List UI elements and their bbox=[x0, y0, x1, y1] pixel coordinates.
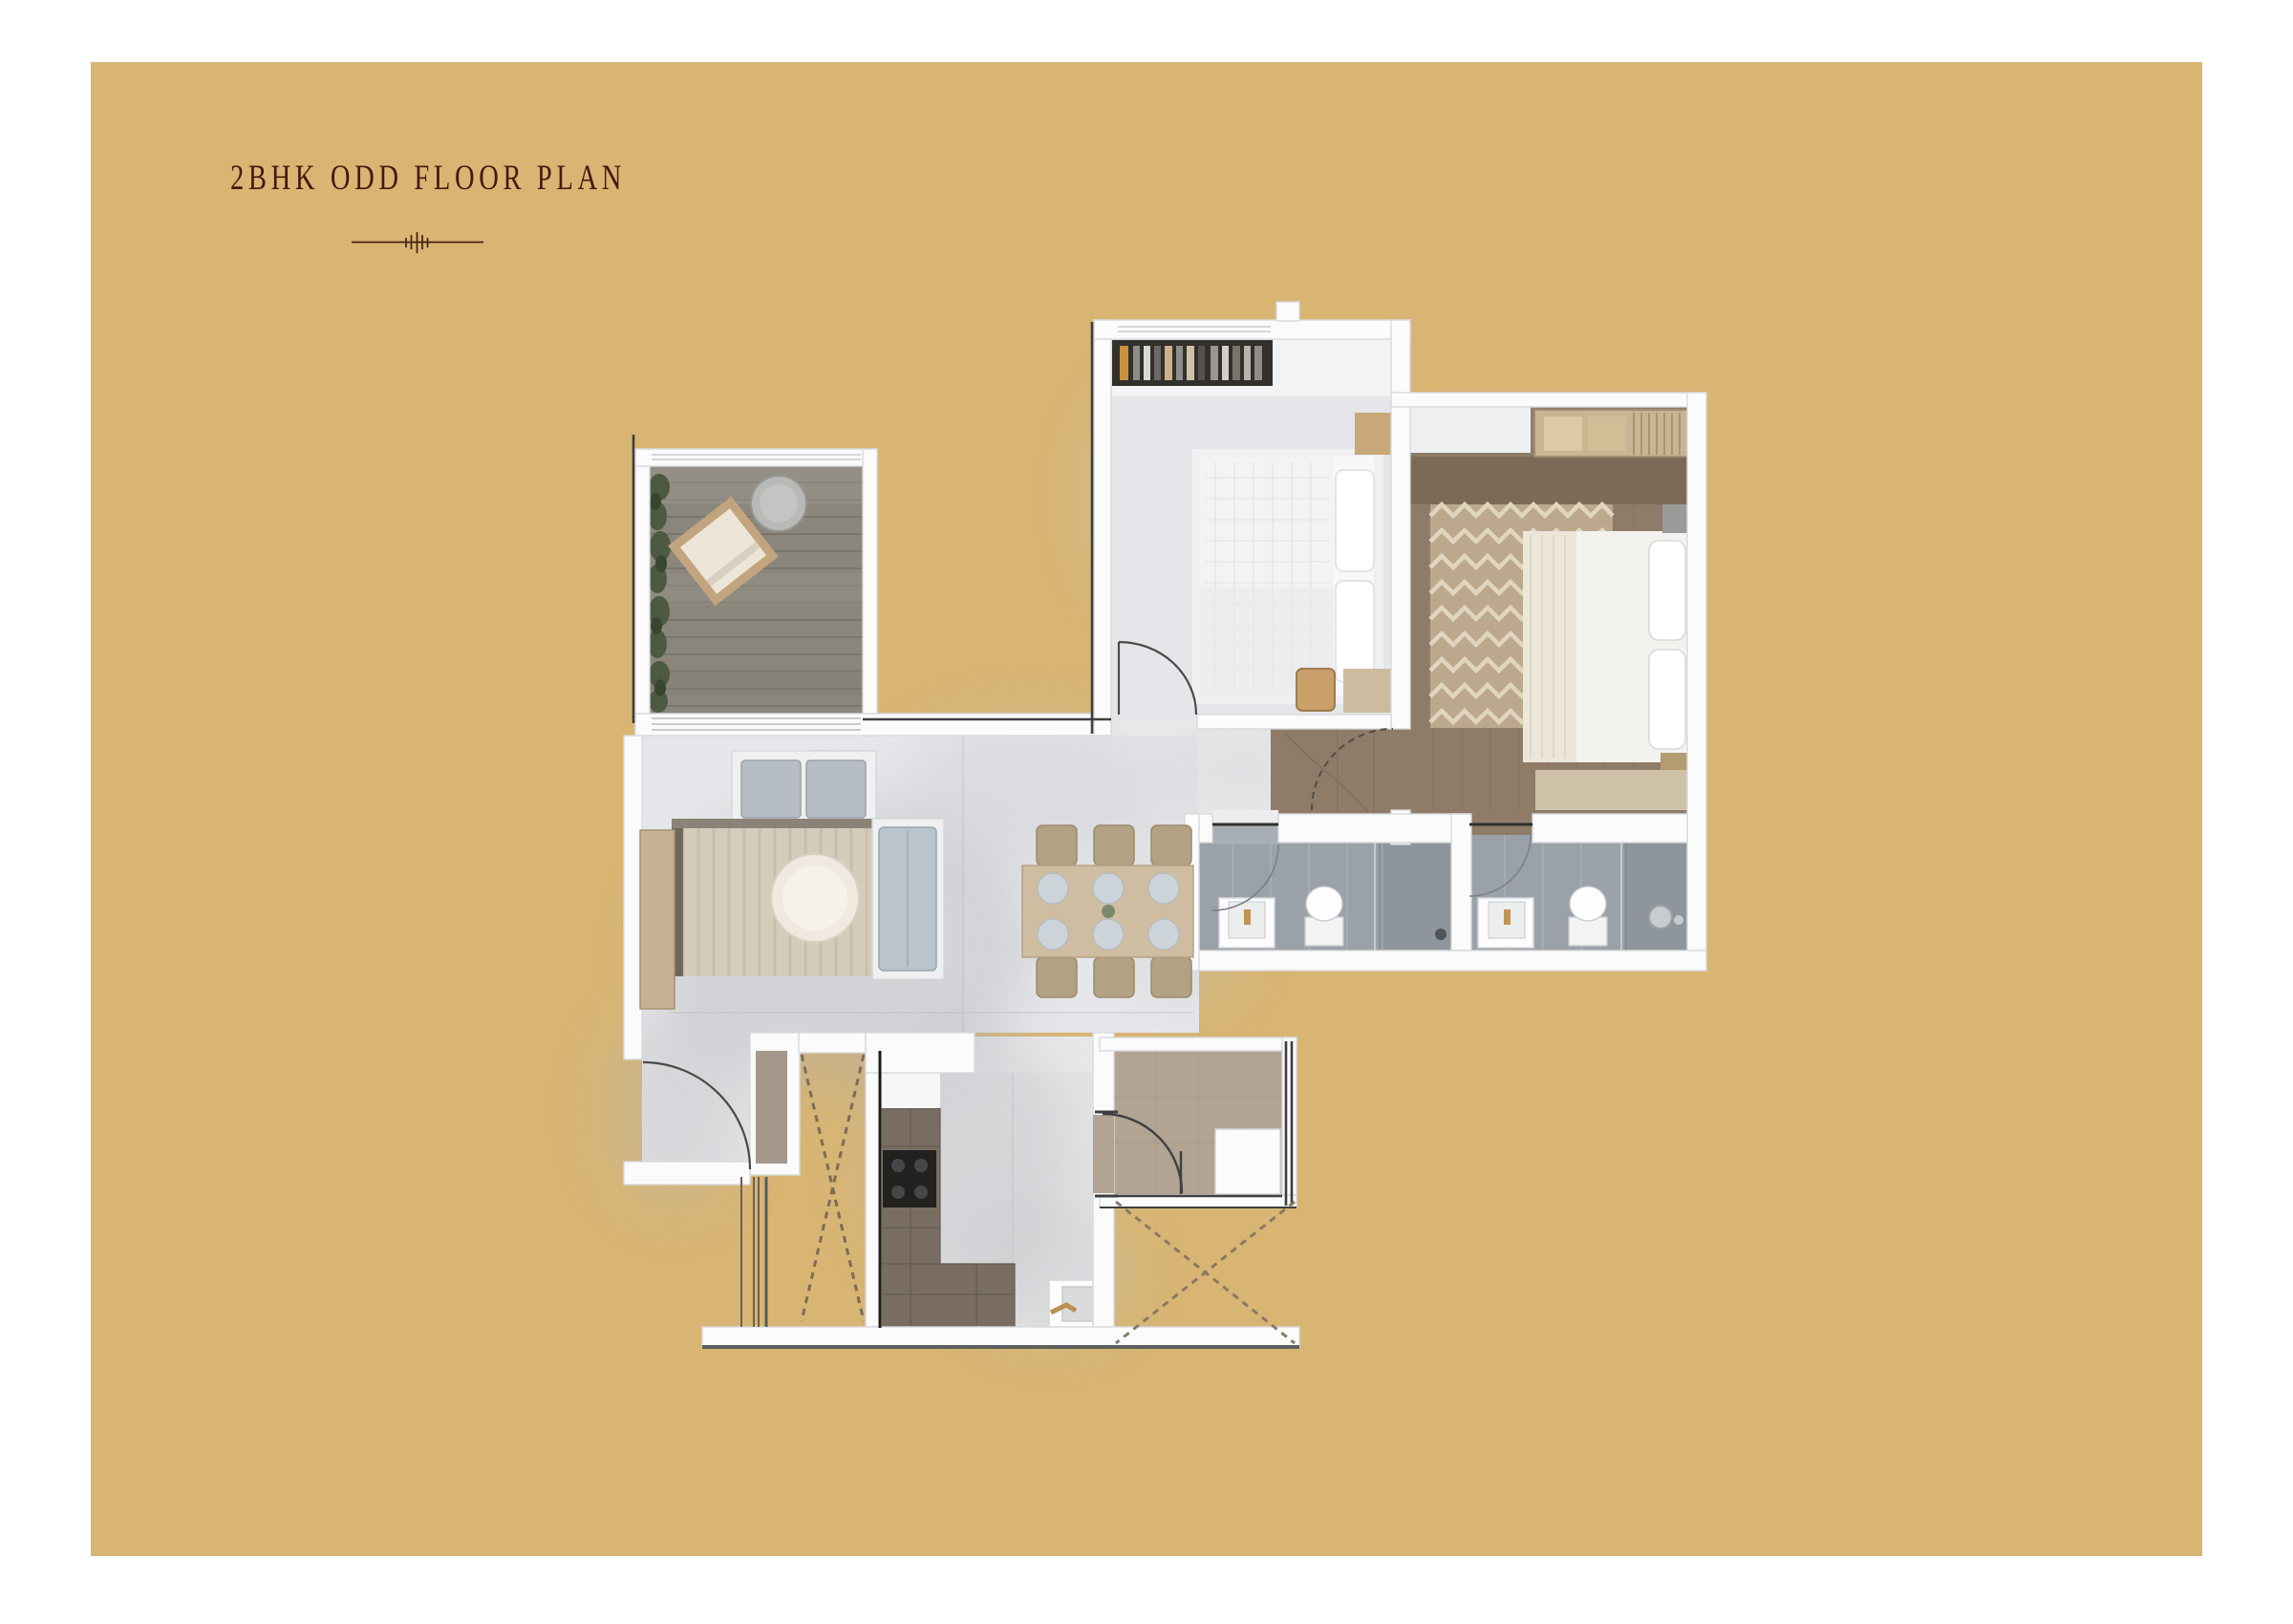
svg-text:2BHK ODD FLOOR PLAN: 2BHK ODD FLOOR PLAN bbox=[230, 159, 626, 198]
